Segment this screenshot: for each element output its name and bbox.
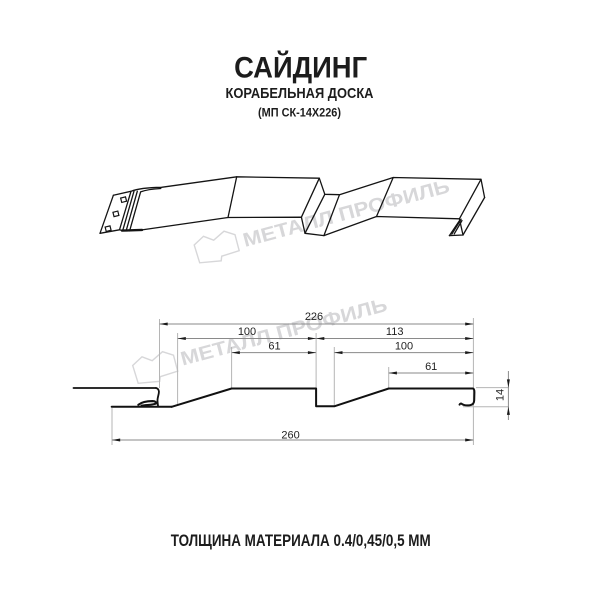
svg-text:(МП СК-14Х226): (МП СК-14Х226) (258, 105, 341, 119)
svg-text:МЕТАЛЛ ПРОФИЛЬ: МЕТАЛЛ ПРОФИЛЬ (178, 294, 389, 370)
svg-text:61: 61 (268, 341, 280, 353)
svg-text:226: 226 (305, 311, 323, 323)
svg-text:260: 260 (281, 429, 299, 441)
svg-text:14: 14 (495, 389, 507, 401)
svg-text:КОРАБЕЛЬНАЯ ДОСКА: КОРАБЕЛЬНАЯ ДОСКА (226, 85, 374, 102)
svg-text:113: 113 (386, 326, 404, 338)
svg-text:ТОЛЩИНА МАТЕРИАЛА 0.4/0,45/0,5: ТОЛЩИНА МАТЕРИАЛА 0.4/0,45/0,5 ММ (171, 531, 431, 550)
svg-text:100: 100 (395, 341, 413, 353)
svg-text:61: 61 (425, 361, 437, 373)
svg-text:САЙДИНГ: САЙДИНГ (234, 51, 367, 85)
svg-text:100: 100 (238, 326, 256, 338)
svg-text:МЕТАЛЛ ПРОФИЛЬ: МЕТАЛЛ ПРОФИЛЬ (241, 175, 452, 251)
